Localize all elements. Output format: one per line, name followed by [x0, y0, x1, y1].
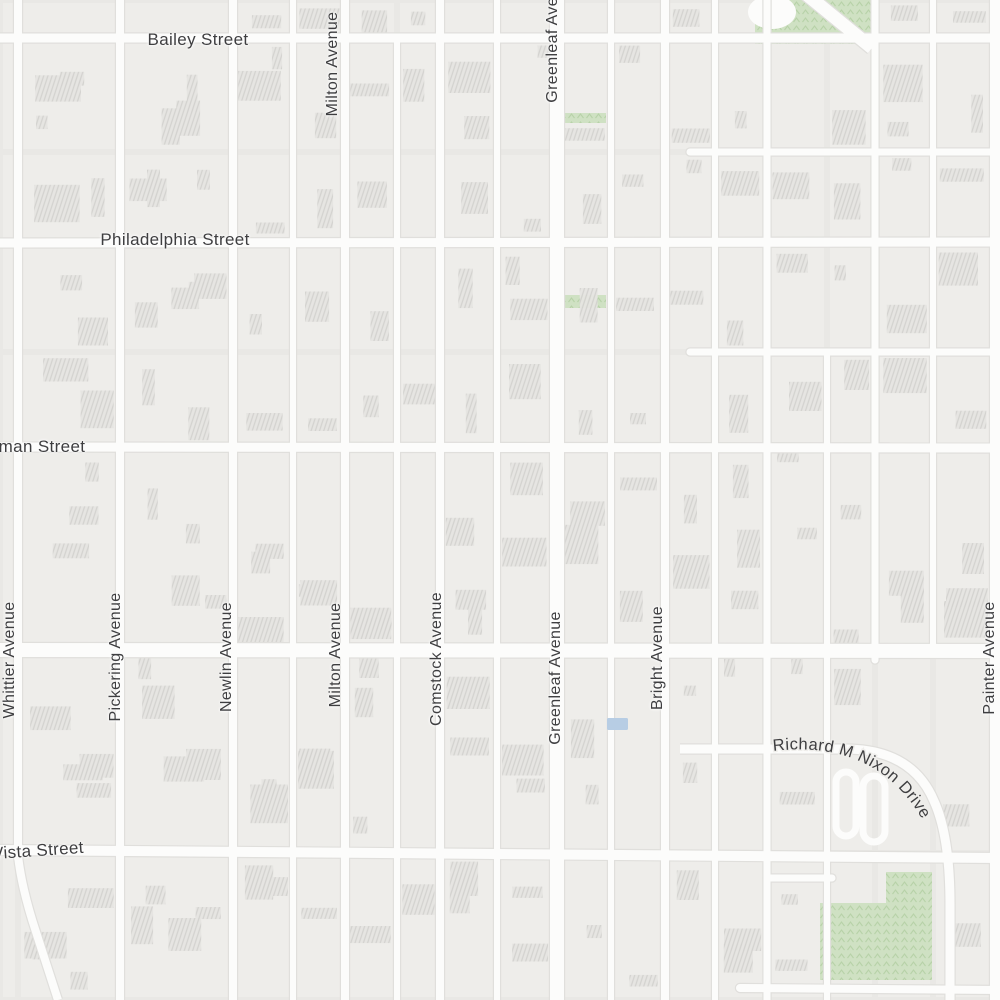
map-graphics: Richard M Nixon Drive — [0, 0, 1000, 1000]
map-canvas[interactable]: Richard M Nixon Drive Bailey StreetPhila… — [0, 0, 1000, 1000]
